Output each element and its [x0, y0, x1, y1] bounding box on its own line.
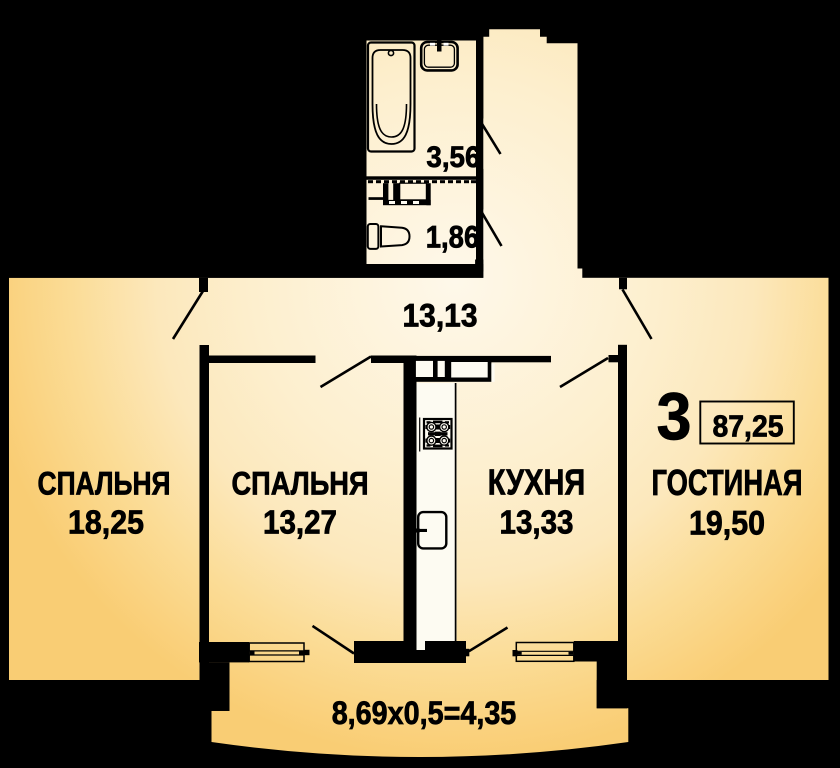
svg-text:КУХНЯ: КУХНЯ	[488, 462, 586, 503]
svg-text:3: 3	[657, 380, 692, 455]
svg-text:8,69х0,5=4,35: 8,69х0,5=4,35	[332, 695, 517, 731]
svg-text:3,56: 3,56	[426, 141, 480, 174]
svg-text:ГОСТИНАЯ: ГОСТИНАЯ	[652, 462, 803, 503]
svg-text:13,27: 13,27	[263, 505, 337, 542]
svg-text:СПАЛЬНЯ: СПАЛЬНЯ	[232, 466, 369, 502]
svg-text:СПАЛЬНЯ: СПАЛЬНЯ	[38, 466, 171, 502]
svg-text:1,86: 1,86	[426, 219, 480, 255]
svg-text:13,13: 13,13	[403, 298, 478, 334]
svg-text:87,25: 87,25	[713, 409, 784, 444]
svg-text:19,50: 19,50	[689, 505, 765, 543]
svg-text:13,33: 13,33	[500, 505, 574, 542]
svg-text:18,25: 18,25	[68, 505, 144, 542]
